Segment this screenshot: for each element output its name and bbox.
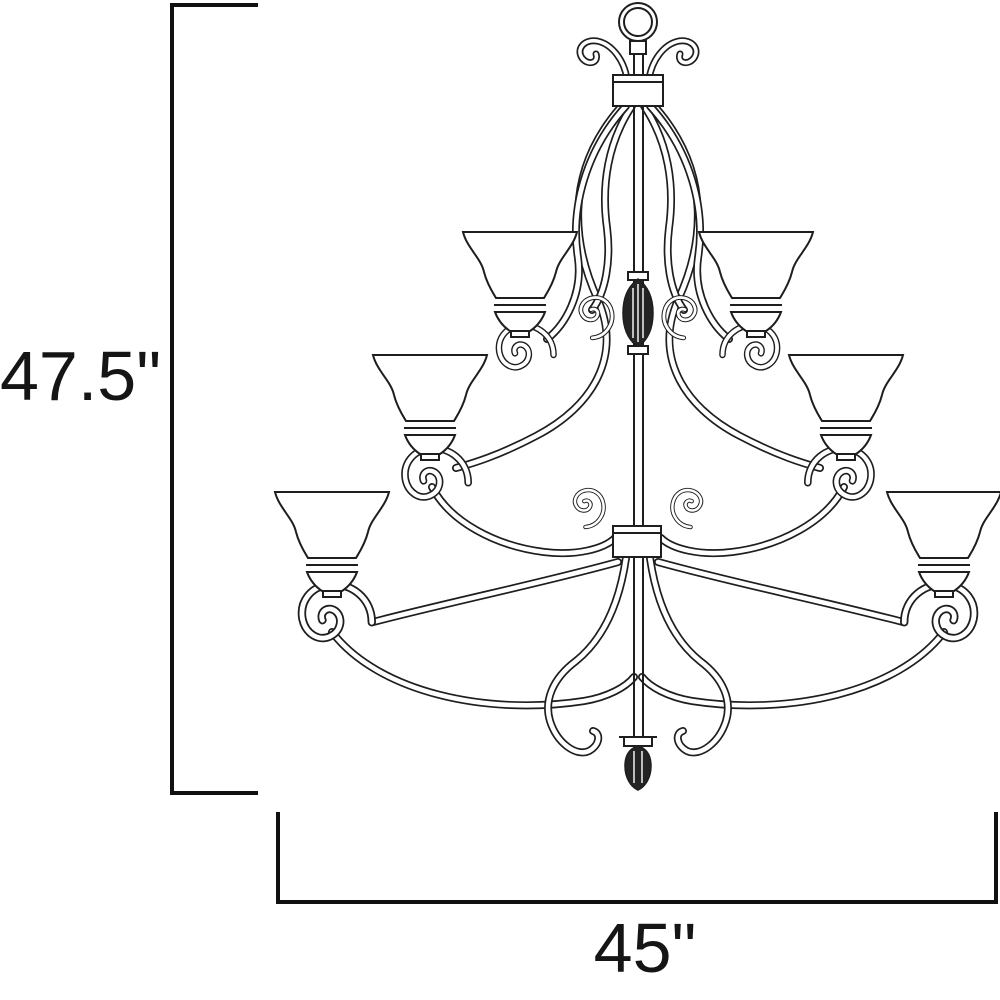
chandelier-drawing	[0, 0, 1000, 1000]
stem-spindle	[623, 272, 653, 354]
bottom-finial	[619, 737, 657, 790]
chandelier-arms-left	[302, 41, 634, 753]
glass-shade-middle-left	[373, 355, 487, 460]
hub-collar	[613, 526, 661, 557]
glass-shade-bottom-right	[887, 492, 1000, 597]
chandelier-arms-right	[642, 41, 974, 753]
dimension-diagram: 47.5" 45"	[0, 0, 1000, 1000]
width-dimension-label: 45"	[565, 913, 725, 983]
center-stem	[634, 54, 643, 738]
glass-shade-middle-right	[789, 355, 903, 460]
height-dimension-line	[172, 5, 258, 793]
height-dimension-label: 47.5"	[0, 341, 158, 411]
glass-shade-bottom-left	[275, 492, 389, 597]
width-dimension-line	[278, 812, 996, 902]
